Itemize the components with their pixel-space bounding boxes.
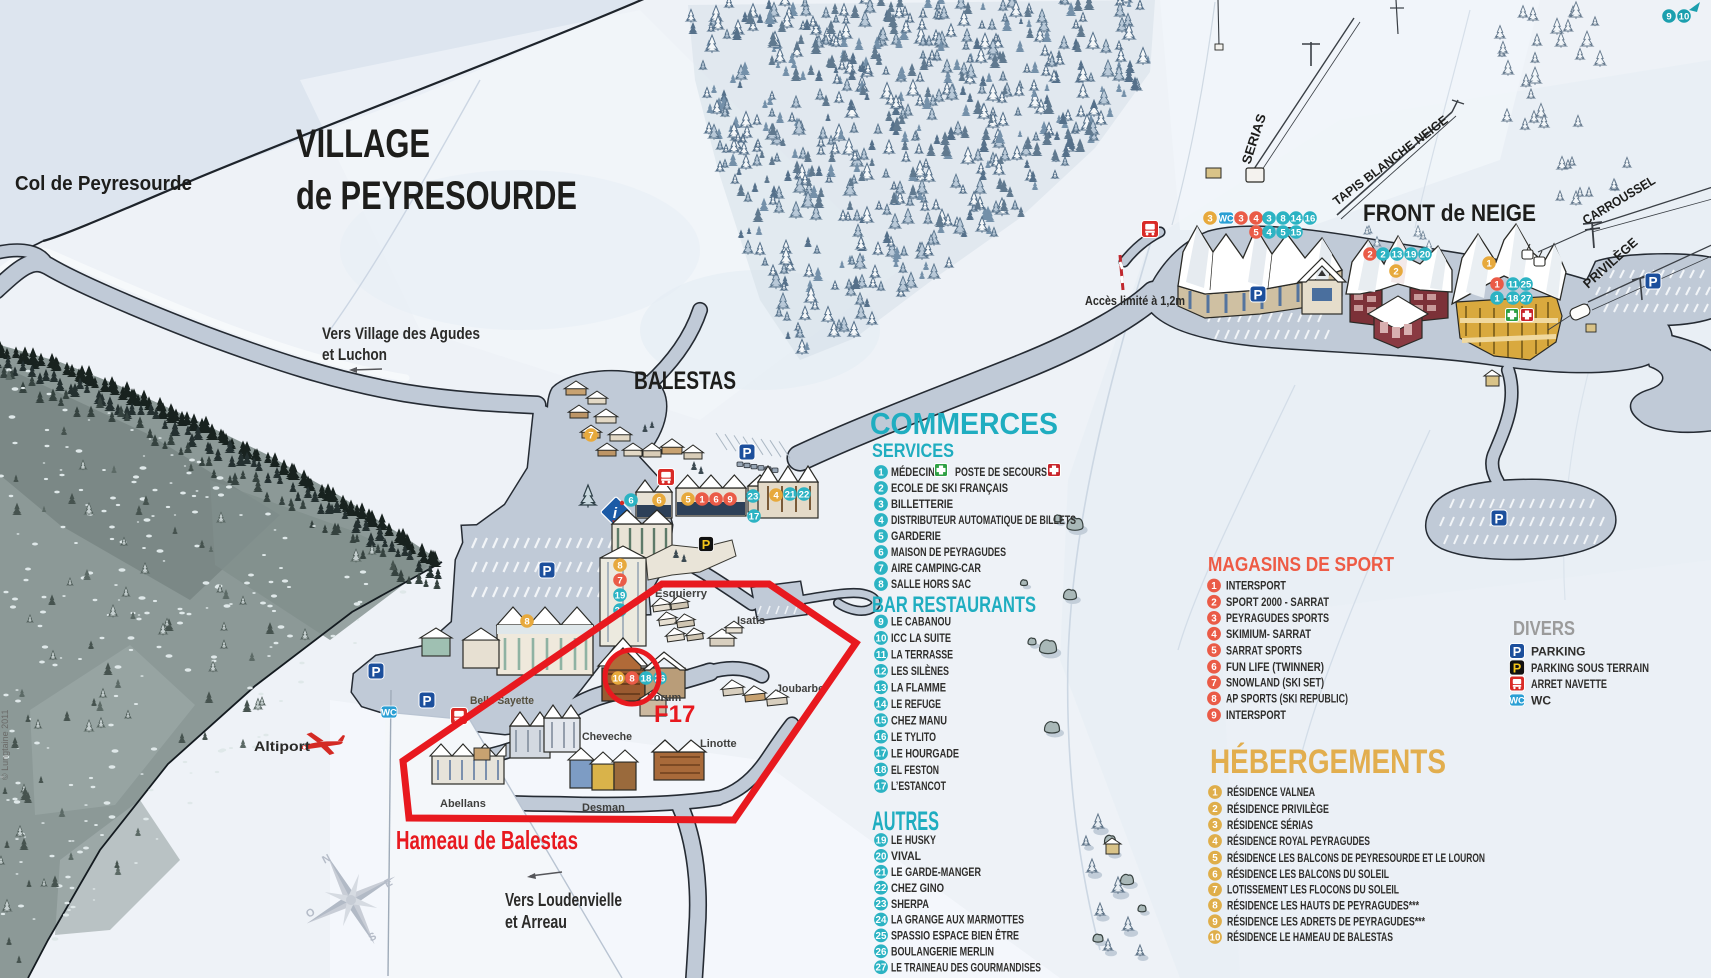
svg-text:23: 23 — [748, 491, 759, 502]
svg-text:SKIMIUM- SARRAT: SKIMIUM- SARRAT — [1226, 627, 1312, 641]
svg-text:7: 7 — [588, 430, 593, 441]
svg-text:8: 8 — [617, 560, 623, 571]
svg-text:2: 2 — [878, 484, 884, 495]
svg-text:3: 3 — [1211, 613, 1217, 624]
svg-text:9: 9 — [727, 494, 732, 505]
svg-text:Joubarbe: Joubarbe — [776, 683, 824, 695]
svg-text:9: 9 — [1211, 711, 1217, 722]
svg-text:14: 14 — [876, 699, 887, 710]
svg-text:6: 6 — [878, 548, 884, 559]
svg-text:LE TRAINEAU DES GOURMANDISES: LE TRAINEAU DES GOURMANDISES — [891, 960, 1041, 974]
svg-text:2: 2 — [1367, 249, 1372, 260]
svg-text:4: 4 — [878, 516, 884, 527]
svg-text:2: 2 — [1380, 249, 1385, 260]
svg-text:COMMERCES: COMMERCES — [870, 406, 1058, 441]
svg-text:AIRE CAMPING-CAR: AIRE CAMPING-CAR — [891, 561, 981, 575]
svg-text:P: P — [371, 664, 380, 679]
svg-text:6: 6 — [1212, 869, 1218, 880]
svg-text:P: P — [702, 537, 711, 552]
svg-text:MAGASINS DE SPORT: MAGASINS DE SPORT — [1208, 554, 1394, 576]
svg-text:EL FESTON: EL FESTON — [891, 763, 939, 777]
svg-text:16: 16 — [876, 732, 887, 743]
svg-text:Col de Peyresourde: Col de Peyresourde — [15, 173, 192, 195]
svg-text:P: P — [1494, 511, 1503, 526]
svg-text:Vers Loudenvielle: Vers Loudenvielle — [505, 890, 622, 910]
svg-text:15: 15 — [1291, 227, 1302, 238]
svg-text:6: 6 — [628, 495, 633, 506]
svg-text:5: 5 — [1280, 227, 1286, 238]
svg-text:Hameau de Balestas: Hameau de Balestas — [396, 825, 578, 855]
svg-text:11: 11 — [1508, 279, 1519, 290]
svg-text:ECOLE DE SKI FRANÇAIS: ECOLE DE SKI FRANÇAIS — [891, 481, 1008, 495]
svg-text:LOTISSEMENT LES FLOCONS DU SOL: LOTISSEMENT LES FLOCONS DU SOLEIL — [1227, 883, 1399, 897]
svg-text:7: 7 — [1212, 885, 1218, 896]
svg-text:LA TERRASSE: LA TERRASSE — [891, 648, 953, 662]
svg-text:11: 11 — [876, 650, 887, 661]
svg-text:P: P — [1648, 274, 1657, 289]
svg-text:© Lungtaine 2011: © Lungtaine 2011 — [0, 709, 10, 780]
svg-text:1: 1 — [699, 494, 705, 505]
svg-text:PARKING SOUS TERRAIN: PARKING SOUS TERRAIN — [1531, 661, 1649, 675]
svg-text:BAR RESTAURANTS: BAR RESTAURANTS — [872, 592, 1036, 617]
svg-text:SALLE HORS SAC: SALLE HORS SAC — [891, 577, 971, 591]
svg-text:Cheveche: Cheveche — [582, 731, 632, 743]
svg-text:LE REFUGE: LE REFUGE — [891, 697, 941, 711]
svg-text:27: 27 — [1521, 293, 1532, 304]
svg-text:22: 22 — [876, 883, 887, 894]
svg-text:2: 2 — [1393, 266, 1398, 277]
svg-text:24: 24 — [876, 915, 887, 926]
svg-text:AP SPORTS (SKI REPUBLIC): AP SPORTS (SKI REPUBLIC) — [1226, 692, 1348, 706]
svg-text:POSTE DE SECOURS: POSTE DE SECOURS — [955, 465, 1047, 479]
svg-text:DISTRIBUTEUR AUTOMATIQUE DE B: DISTRIBUTEUR AUTOMATIQUE DE BILLETS — [891, 513, 1076, 527]
svg-text:5: 5 — [878, 532, 884, 543]
svg-text:7: 7 — [1211, 678, 1217, 689]
svg-text:18: 18 — [876, 765, 887, 776]
svg-text:P: P — [422, 693, 431, 708]
svg-text:HÉBERGEMENTS: HÉBERGEMENTS — [1210, 743, 1446, 781]
svg-text:10: 10 — [1679, 11, 1690, 22]
svg-text:RÉSIDENCE SÉRIAS: RÉSIDENCE SÉRIAS — [1227, 817, 1313, 832]
svg-text:13: 13 — [876, 683, 887, 694]
svg-text:19: 19 — [615, 590, 626, 601]
svg-text:9: 9 — [1666, 11, 1671, 22]
svg-text:FUN LIFE (TWINNER): FUN LIFE (TWINNER) — [1226, 660, 1324, 674]
svg-text:22: 22 — [799, 489, 810, 500]
svg-text:17: 17 — [876, 782, 887, 793]
svg-text:BOULANGERIE MERLIN: BOULANGERIE MERLIN — [891, 945, 994, 959]
svg-text:RÉSIDENCE LE HAMEAU DE BALESTA: RÉSIDENCE LE HAMEAU DE BALESTAS — [1227, 929, 1393, 944]
svg-text:SHERPA: SHERPA — [891, 897, 929, 911]
svg-text:WC: WC — [1531, 694, 1551, 708]
svg-text:Desman: Desman — [582, 802, 625, 814]
svg-text:RÉSIDENCE LES BALCONS DE PEYRE: RÉSIDENCE LES BALCONS DE PEYRESOURDE ET … — [1227, 850, 1485, 865]
svg-text:AUTRES: AUTRES — [872, 806, 939, 836]
svg-text:20: 20 — [876, 851, 887, 862]
svg-text:27: 27 — [876, 963, 887, 974]
svg-text:RÉSIDENCE VALNEA: RÉSIDENCE VALNEA — [1227, 784, 1315, 799]
svg-text:BALESTAS: BALESTAS — [634, 367, 736, 395]
svg-text:P: P — [542, 563, 551, 578]
svg-text:P: P — [1513, 644, 1522, 659]
svg-text:SNOWLAND (SKI SET): SNOWLAND (SKI SET) — [1226, 676, 1324, 690]
svg-text:3: 3 — [1238, 213, 1243, 224]
svg-text:PEYRAGUDES SPORTS: PEYRAGUDES SPORTS — [1226, 611, 1329, 625]
svg-text:8: 8 — [1211, 694, 1217, 705]
svg-text:P: P — [742, 445, 751, 460]
svg-text:10: 10 — [1210, 933, 1221, 944]
svg-text:LE HUSKY: LE HUSKY — [891, 833, 936, 847]
svg-text:14: 14 — [1291, 213, 1302, 224]
svg-text:5: 5 — [685, 494, 691, 505]
svg-text:LE TYLITO: LE TYLITO — [891, 730, 936, 744]
svg-text:BILLETTERIE: BILLETTERIE — [891, 497, 953, 511]
svg-text:LES SILÈNES: LES SILÈNES — [891, 663, 949, 678]
svg-text:6: 6 — [1211, 662, 1217, 673]
svg-text:8: 8 — [1280, 213, 1286, 224]
svg-text:INTERSPORT: INTERSPORT — [1226, 708, 1287, 722]
svg-text:4: 4 — [1253, 213, 1259, 224]
svg-text:LE CABANOU: LE CABANOU — [891, 615, 951, 629]
svg-text:4: 4 — [1211, 629, 1217, 640]
svg-text:Accès limité à 1,2m: Accès limité à 1,2m — [1085, 293, 1185, 308]
svg-text:LA FLAMME: LA FLAMME — [891, 681, 946, 695]
svg-text:10: 10 — [876, 633, 887, 644]
svg-text:4: 4 — [1266, 227, 1272, 238]
svg-text:SPORT 2000 - SARRAT: SPORT 2000 - SARRAT — [1226, 595, 1330, 609]
svg-text:23: 23 — [876, 899, 887, 910]
svg-text:20: 20 — [1420, 249, 1431, 260]
svg-text:L’ESTANCOT: L’ESTANCOT — [891, 779, 946, 793]
svg-text:et Arreau: et Arreau — [505, 912, 567, 932]
svg-text:19: 19 — [876, 836, 887, 847]
svg-text:Vers Village des Agudes: Vers Village des Agudes — [322, 324, 480, 343]
svg-text:Abellans: Abellans — [440, 798, 486, 810]
svg-text:9: 9 — [878, 617, 884, 628]
svg-text:8: 8 — [878, 580, 884, 591]
svg-text:1: 1 — [1212, 788, 1218, 799]
svg-text:et Luchon: et Luchon — [322, 345, 387, 364]
svg-text:2: 2 — [1212, 804, 1218, 815]
svg-text:4: 4 — [1212, 837, 1218, 848]
svg-text:Linotte: Linotte — [700, 738, 737, 750]
svg-text:5: 5 — [1211, 646, 1217, 657]
svg-text:FRONT de NEIGE: FRONT de NEIGE — [1363, 200, 1536, 227]
svg-text:2: 2 — [1211, 597, 1217, 608]
svg-text:P: P — [1513, 660, 1522, 675]
svg-text:21: 21 — [876, 867, 887, 878]
svg-text:GARDERIE: GARDERIE — [891, 529, 941, 543]
svg-text:7: 7 — [617, 575, 622, 586]
svg-text:RÉSIDENCE LES BALCONS DU SOLEI: RÉSIDENCE LES BALCONS DU SOLEIL — [1227, 866, 1389, 881]
svg-text:CHEZ MANU: CHEZ MANU — [891, 713, 947, 727]
svg-text:8: 8 — [629, 673, 635, 684]
svg-text:6: 6 — [656, 495, 661, 506]
svg-text:WC: WC — [1218, 214, 1234, 224]
svg-text:RÉSIDENCE LES ADRETS DE PEYRAG: RÉSIDENCE LES ADRETS DE PEYRAGUDES*** — [1227, 914, 1425, 929]
svg-text:CHEZ GINO: CHEZ GINO — [891, 881, 944, 895]
svg-text:16: 16 — [1305, 213, 1316, 224]
svg-text:VILLAGE: VILLAGE — [296, 122, 430, 166]
svg-text:WC: WC — [1509, 696, 1525, 706]
svg-text:25: 25 — [1521, 279, 1532, 290]
svg-text:6: 6 — [713, 494, 718, 505]
svg-text:PARKING: PARKING — [1531, 645, 1585, 659]
svg-text:17: 17 — [876, 749, 887, 760]
svg-text:10: 10 — [613, 673, 624, 684]
svg-text:INTERSPORT: INTERSPORT — [1226, 579, 1287, 593]
svg-text:18: 18 — [641, 673, 652, 684]
svg-text:19: 19 — [1406, 249, 1417, 260]
svg-text:25: 25 — [876, 931, 887, 942]
svg-text:Isatis: Isatis — [737, 615, 765, 627]
svg-text:15: 15 — [876, 716, 887, 727]
svg-text:MAISON DE PEYRAGUDES: MAISON DE PEYRAGUDES — [891, 545, 1006, 559]
svg-text:1: 1 — [1494, 293, 1500, 304]
svg-text:5: 5 — [1253, 227, 1259, 238]
svg-text:1: 1 — [878, 468, 884, 479]
svg-text:VIVAL: VIVAL — [891, 849, 921, 863]
svg-text:1: 1 — [1486, 258, 1492, 269]
svg-text:ICC LA SUITE: ICC LA SUITE — [891, 631, 951, 645]
svg-text:9: 9 — [1212, 917, 1218, 928]
svg-text:3: 3 — [1212, 820, 1218, 831]
svg-text:17: 17 — [749, 511, 760, 522]
svg-text:RÉSIDENCE PRIVILÈGE: RÉSIDENCE PRIVILÈGE — [1227, 801, 1329, 816]
svg-text:LA GRANGE AUX MARMOTTES: LA GRANGE AUX MARMOTTES — [891, 913, 1024, 927]
svg-text:1: 1 — [1211, 581, 1217, 592]
svg-text:8: 8 — [1212, 901, 1218, 912]
svg-text:26: 26 — [876, 947, 887, 958]
svg-text:F17: F17 — [654, 701, 695, 728]
svg-text:P: P — [1253, 287, 1262, 302]
svg-text:21: 21 — [785, 489, 796, 500]
svg-text:LE HOURGADE: LE HOURGADE — [891, 746, 959, 760]
svg-text:de PEYRESOURDE: de PEYRESOURDE — [296, 174, 577, 218]
svg-text:RÉSIDENCE LES HAUTS DE PEYRAG: RÉSIDENCE LES HAUTS DE PEYRAGUDES*** — [1227, 897, 1419, 912]
svg-text:8: 8 — [524, 616, 530, 627]
svg-text:Altiport: Altiport — [254, 738, 310, 754]
svg-text:12: 12 — [876, 666, 887, 677]
svg-text:Esquierry: Esquierry — [655, 588, 708, 600]
svg-text:RÉSIDENCE ROYAL PEYRAGUDES: RÉSIDENCE ROYAL PEYRAGUDES — [1227, 833, 1370, 848]
svg-text:WC: WC — [381, 708, 397, 718]
svg-text:MÉDECIN: MÉDECIN — [891, 464, 935, 479]
svg-text:SARRAT SPORTS: SARRAT SPORTS — [1226, 643, 1302, 657]
svg-text:LE GARDE-MANGER: LE GARDE-MANGER — [891, 865, 981, 879]
svg-text:1: 1 — [1494, 279, 1500, 290]
svg-text:3: 3 — [1266, 213, 1271, 224]
svg-text:18: 18 — [1508, 293, 1519, 304]
svg-text:13: 13 — [1392, 249, 1403, 260]
svg-text:7: 7 — [878, 564, 884, 575]
svg-text:4: 4 — [773, 490, 779, 501]
svg-text:3: 3 — [1207, 213, 1212, 224]
svg-text:3: 3 — [878, 500, 884, 511]
svg-text:5: 5 — [1212, 853, 1218, 864]
svg-text:ARRET NAVETTE: ARRET NAVETTE — [1531, 677, 1607, 691]
svg-text:SPASSIO ESPACE BIEN ÊTRE: SPASSIO ESPACE BIEN ÊTRE — [891, 928, 1019, 943]
svg-text:DIVERS: DIVERS — [1513, 618, 1575, 640]
svg-text:SERVICES: SERVICES — [872, 441, 954, 462]
